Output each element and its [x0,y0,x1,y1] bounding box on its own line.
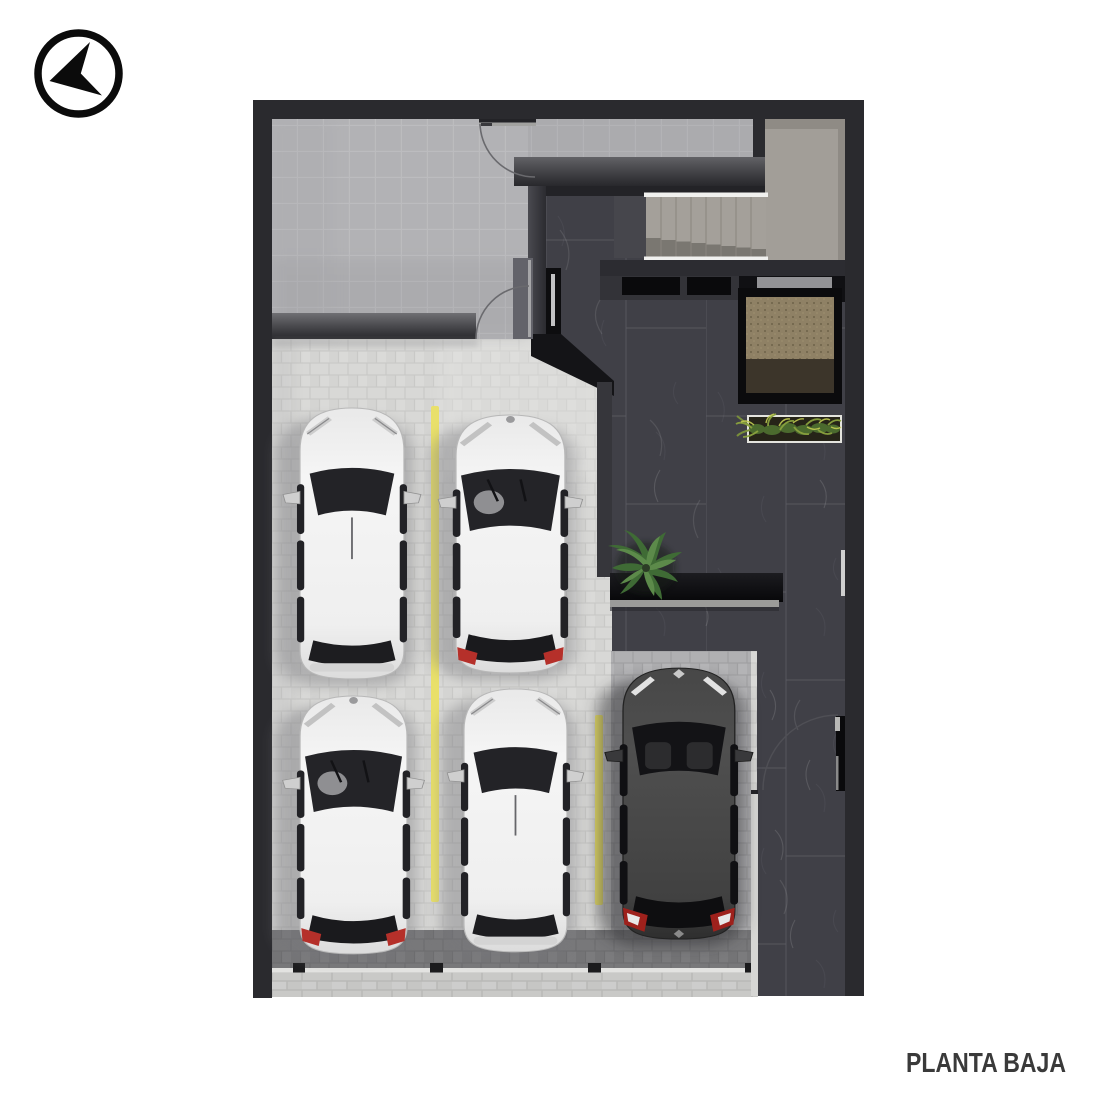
svg-text:PLANTA BAJA: PLANTA BAJA [906,1047,1066,1078]
